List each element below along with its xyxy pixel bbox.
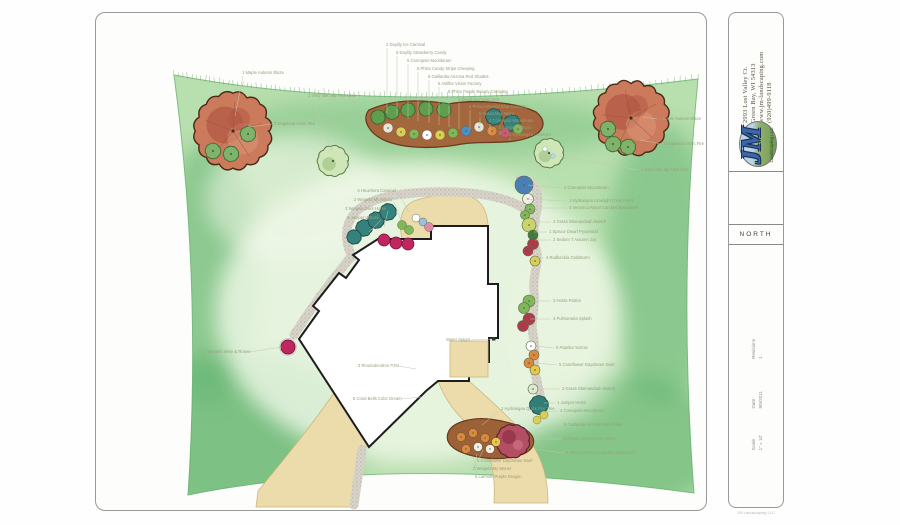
titleblock-sidebar: 2993 Lost Valley Ct. Green Bay, WI 54313… bbox=[728, 12, 784, 508]
logo-initials: JM bbox=[733, 118, 769, 172]
north-label: NORTH bbox=[740, 231, 773, 238]
titleblock-scale: Scale 1" = 10' bbox=[737, 435, 777, 450]
plant-label: 5 Phlox Emerald Blue Creeping bbox=[469, 104, 528, 109]
plant-label: 3 Dogwood Arctic Fire bbox=[663, 141, 705, 146]
plant-label: 5 Dianthus Frosty Fire bbox=[458, 97, 500, 102]
plant-label: 1 Juniper Hetzii bbox=[557, 400, 586, 405]
plant-label: 4 Veronica Royal Candles Speedwell bbox=[569, 205, 638, 210]
plant-label: 5 Astilbe Vision Factory bbox=[438, 81, 482, 86]
plant-label: 5 Phlox Candy Stripe Creeping bbox=[417, 66, 475, 71]
plant-label: 2 Weigela My Monet bbox=[354, 197, 393, 202]
plant-label: 3 Grass Shenandoah Switch bbox=[562, 386, 616, 391]
north-cell: NORTH bbox=[729, 224, 783, 245]
plant-label: 4 Grass Shenandoah Switch bbox=[553, 219, 607, 224]
plant-label: 4 Coreopsis Moonbeam bbox=[564, 185, 609, 190]
plant-label: 3 Weigela Dark Horse bbox=[345, 206, 387, 211]
scanned-plan-page: 2 Daylily Ice Carnival5 Daylily Strawber… bbox=[0, 0, 900, 525]
revisions-label: Revisions bbox=[751, 339, 756, 359]
plant-label: 5 Coneflower Daydream Swirl bbox=[559, 362, 614, 367]
plant-label: 1 Ivory Silk Jap Tree Lilac bbox=[308, 93, 356, 98]
plant-label: 5 Phlox Purple Beauty Creeping bbox=[448, 89, 508, 94]
water-spigot bbox=[492, 337, 496, 341]
plant-label: 1 Spruce Dwarf Pyramidal bbox=[549, 229, 598, 234]
plant-label: 5 Paprika Yarrow bbox=[556, 345, 589, 350]
plant-label: 1 Flower Carpet Rose White bbox=[563, 436, 616, 441]
plant-label: 4 Pulmonaria Splash bbox=[553, 316, 592, 321]
plant-label: 1 Maple Autumn Blaze bbox=[659, 116, 702, 121]
date-value: 9/9/2011 bbox=[758, 391, 763, 409]
titleblock-date: Date 9/9/2011 bbox=[737, 391, 777, 409]
contact-phone: (920)499-9118 bbox=[766, 37, 773, 123]
contact-info: 2993 Lost Valley Ct. Green Bay, WI 54313… bbox=[733, 37, 781, 123]
logo-subtitle: Landscaping LLC bbox=[769, 118, 774, 172]
fine-print: JM Landscaping LLC bbox=[720, 510, 792, 515]
plant-label: 3 Rhododendron PJM bbox=[358, 363, 399, 368]
titleblock-cell: Revisions 1 Date 9/9/2011 Scale 1" = 10' bbox=[729, 243, 783, 507]
plant-label: 2 Daylily Ice Carnival bbox=[386, 42, 425, 47]
plant-label: 3 Dogwood Arctic Fire bbox=[274, 121, 316, 126]
company-logo: JM Landscaping LLC bbox=[731, 118, 783, 172]
contact-city-line: Green Bay, WI 54313 bbox=[750, 37, 757, 123]
patio bbox=[450, 341, 488, 377]
plant-label: 5 Daylily Strawberry Candy bbox=[396, 50, 447, 55]
plant-label: 3 Hosta Patriot bbox=[553, 298, 582, 303]
titleblock-revisions: Revisions 1 bbox=[737, 339, 777, 359]
plant-label: 5 Coreopsis Moonbeam bbox=[407, 58, 452, 63]
plant-label: 1 Ivory Silk Jap Tree Lilac bbox=[641, 167, 689, 172]
revisions-value: 1 bbox=[758, 339, 763, 359]
scale-value: 1" = 10' bbox=[758, 435, 763, 450]
plant-label: 5 Juniper Wiltonii bbox=[347, 215, 379, 220]
contact-website: www.jm-landscaping.com bbox=[758, 37, 765, 123]
plant-label: 1 Maple Autumn Blaze bbox=[242, 70, 285, 75]
empty-cell bbox=[729, 171, 783, 224]
plant-label: Water Spigot bbox=[446, 337, 471, 342]
logo-cell: 2993 Lost Valley Ct. Green Bay, WI 54313… bbox=[729, 13, 783, 172]
plant-label: 4 Rudbeckia Goldsturm bbox=[546, 255, 590, 260]
plant-label: 4 Coreopsis Moonbeam bbox=[489, 118, 534, 123]
plant-label: 3 Heuchera Caramel bbox=[357, 188, 396, 193]
plant-label: 1 Weigela Wine & Roses bbox=[204, 349, 250, 354]
plant-label: 4 Veronica Royal Candles Speedwell bbox=[566, 450, 635, 455]
plant-label: 5 Gaillardia Arizona Red Shades bbox=[428, 74, 489, 79]
plant-label: 1 Hydrangea Quick Fire Tree bbox=[501, 406, 555, 411]
contact-address-line: 2993 Lost Valley Ct. bbox=[742, 37, 749, 123]
plan-sheet: 2 Daylily Ice Carnival5 Daylily Strawber… bbox=[95, 12, 707, 511]
plant-label: 2 Hydrangea Limelight bbox=[509, 132, 552, 137]
site-plan-drawing: 2 Daylily Ice Carnival5 Daylily Strawber… bbox=[96, 13, 706, 510]
plant-label: 2 Weigela My Monet bbox=[473, 466, 512, 471]
plant-label: 5 Coneflower Daydream Swirl bbox=[477, 458, 532, 463]
plant-label: 4 Coreopsis Moonbeam bbox=[560, 408, 605, 413]
plant-label: 6 Coral Bells Color Dream bbox=[353, 396, 402, 401]
scale-label: Scale bbox=[751, 435, 756, 450]
plant-label: 5 Gaillardia Arizona Red Shade bbox=[564, 422, 623, 427]
plant-label: 1 Hydrangea Limelight (Tree Form) bbox=[569, 198, 635, 203]
plant-label: 5 Salvia May Night bbox=[479, 111, 515, 116]
plant-label: 4 Juniper Wiltonii bbox=[499, 125, 531, 130]
date-label: Date bbox=[751, 391, 756, 409]
plant-label: 5 Lamium Purple Dragon bbox=[475, 474, 522, 479]
plant-label: 2 Sedum T Autumn Joy bbox=[553, 237, 597, 242]
